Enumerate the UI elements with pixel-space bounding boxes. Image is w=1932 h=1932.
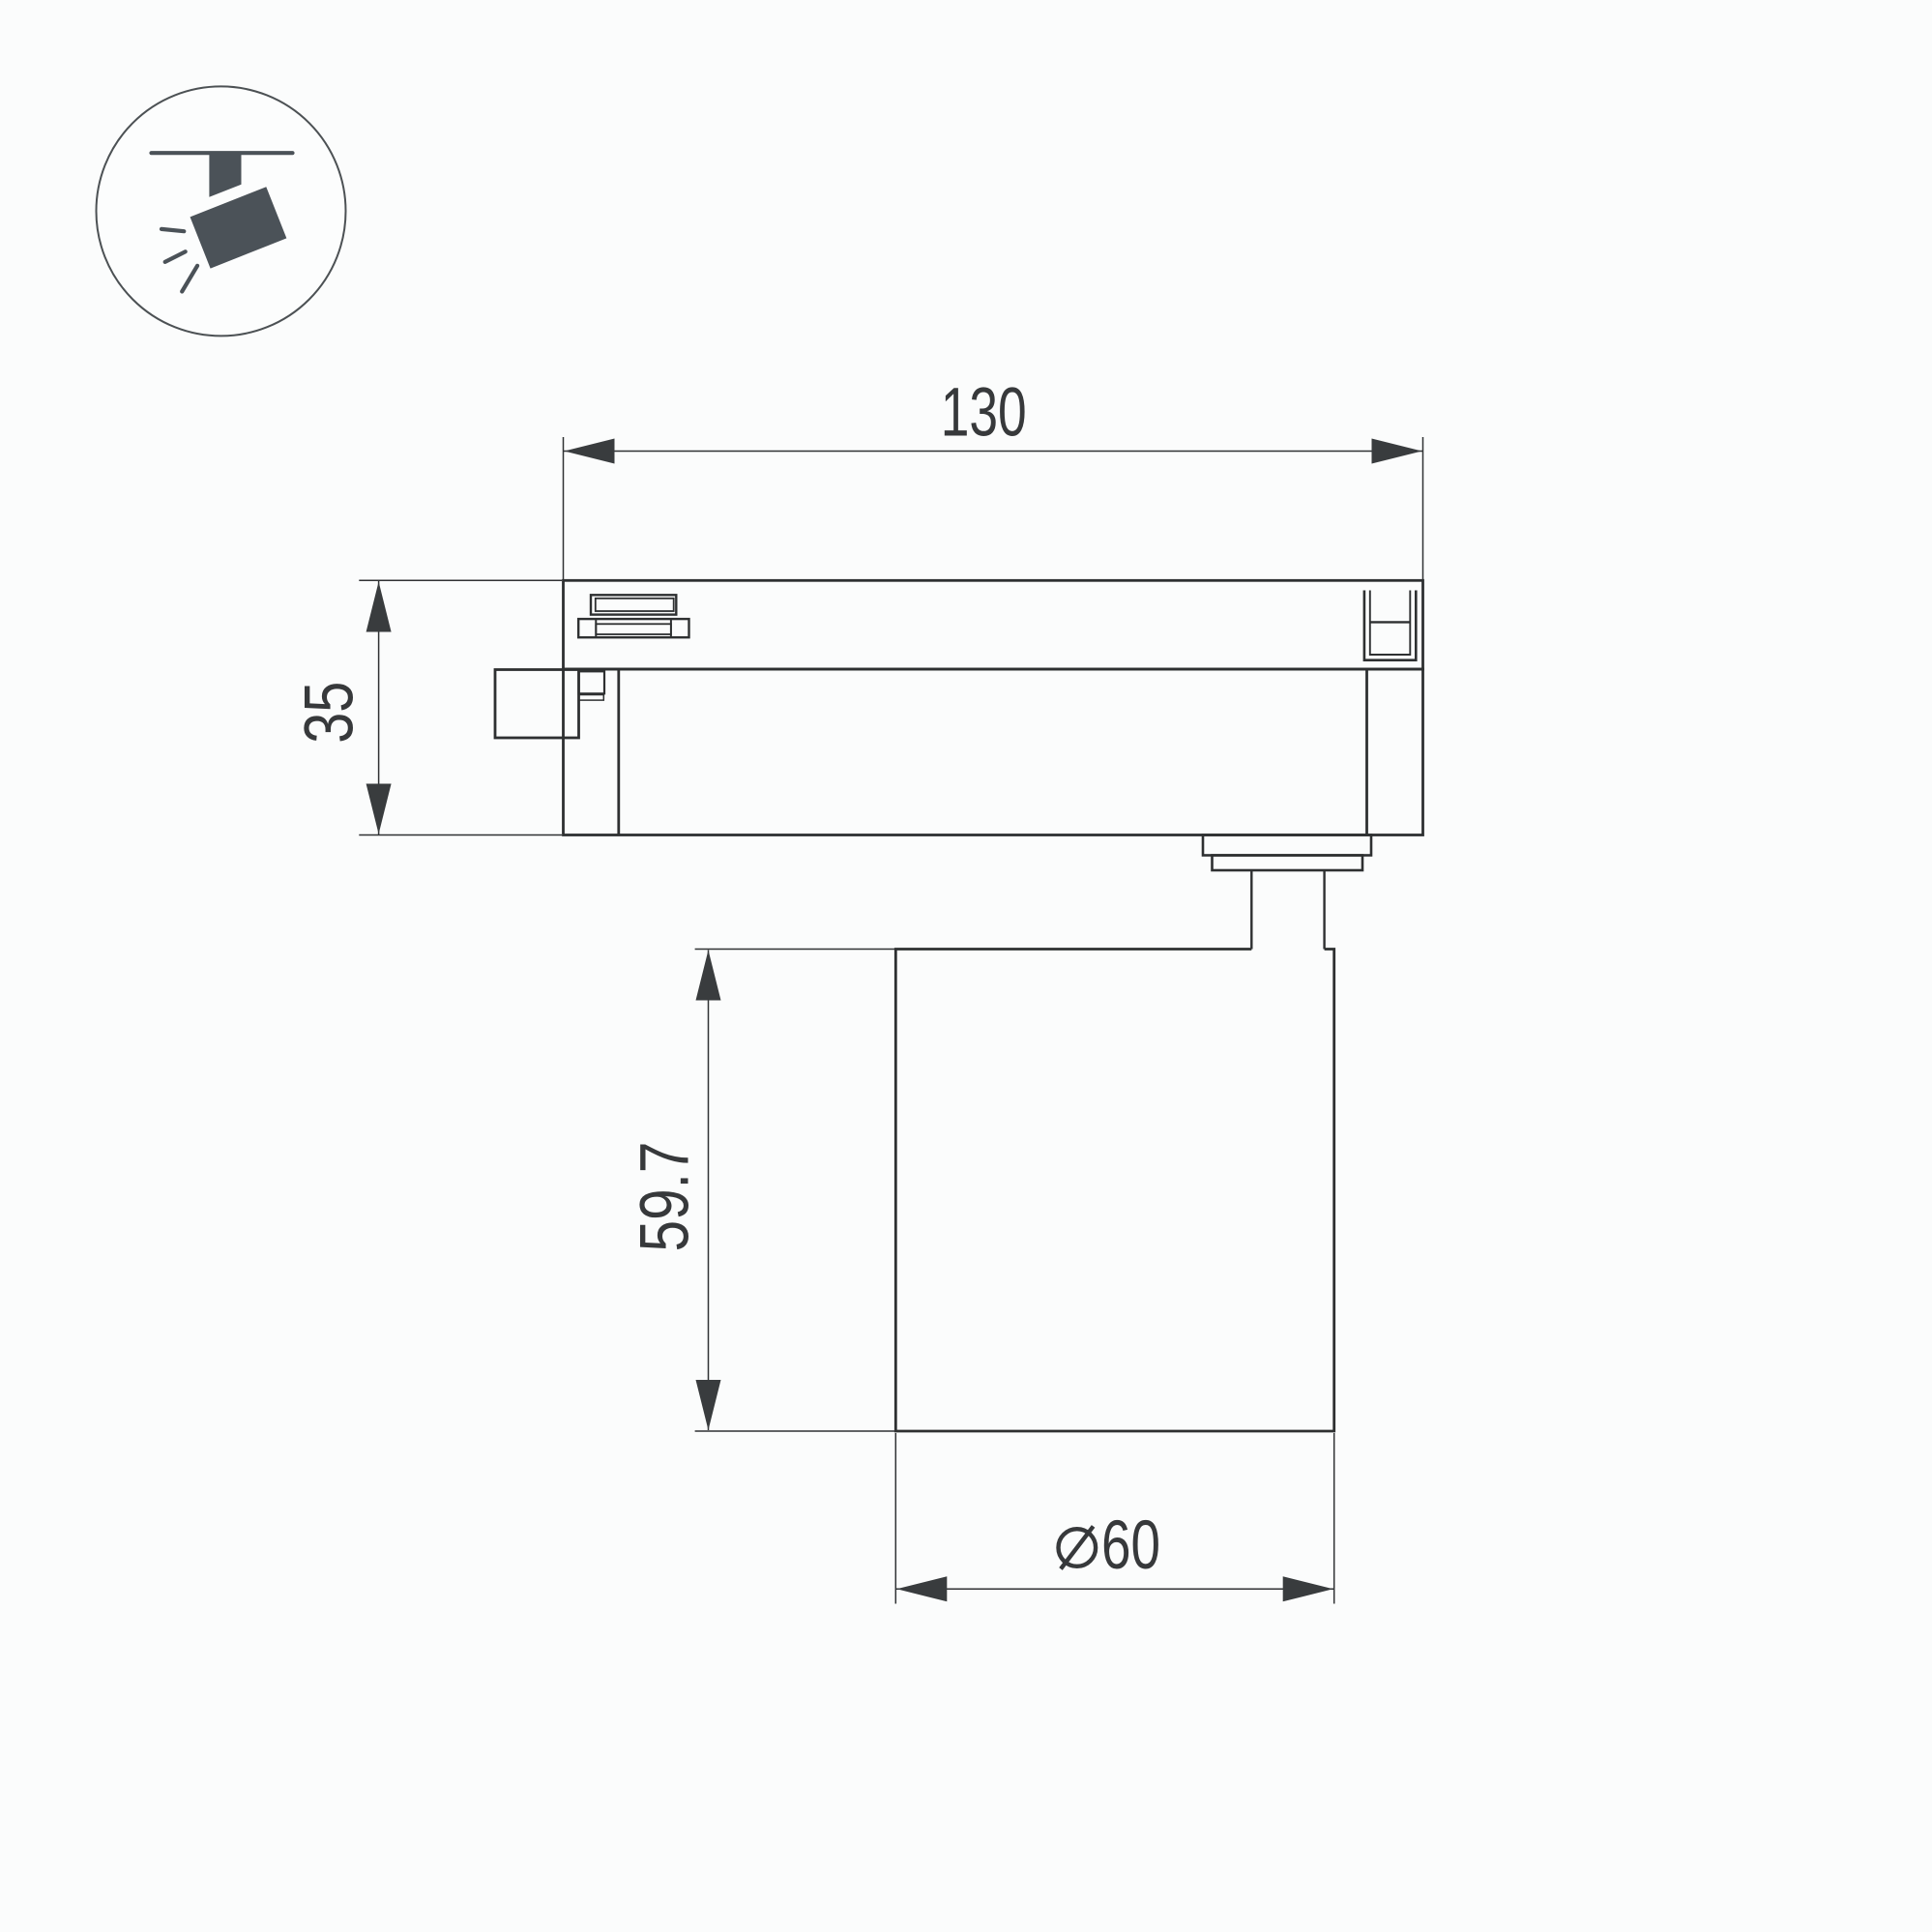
svg-text:59.7: 59.7 bbox=[628, 1142, 704, 1252]
svg-text:130: 130 bbox=[941, 375, 1027, 452]
svg-text:60: 60 bbox=[1101, 1508, 1160, 1584]
svg-text:35: 35 bbox=[291, 682, 367, 744]
